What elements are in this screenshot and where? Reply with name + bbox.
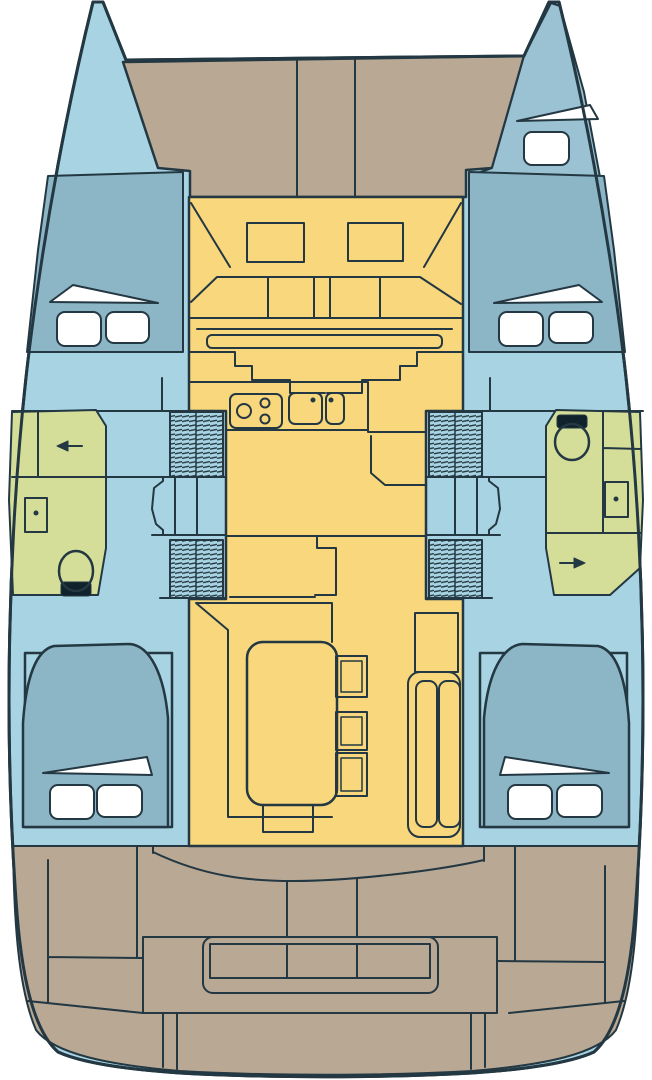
catamaran-floor-plan — [0, 0, 652, 1080]
starboard-aft-pillow-2 — [557, 785, 602, 817]
starboard-sink-faucet-dot — [614, 497, 618, 501]
port-forward-pillow-2 — [106, 312, 149, 343]
starboard-toilet-seat — [557, 415, 587, 428]
floor-plan-canvas — [0, 0, 652, 1080]
galley-faucet-dot — [311, 398, 315, 402]
starboard-aft-pillow-1 — [508, 785, 552, 819]
port-forward-pillow-1 — [57, 312, 101, 346]
salon-floor — [189, 197, 463, 846]
starboard-forward-pillow-2 — [549, 312, 593, 343]
plan-artwork — [9, 2, 643, 1077]
port-head — [9, 410, 106, 595]
port-toilet-seat — [61, 582, 91, 596]
port-aft-pillow-2 — [97, 785, 142, 817]
starboard-forward-pillow-1 — [499, 312, 543, 346]
port-sink-faucet-dot — [34, 511, 38, 515]
port-aft-cabin-bed — [23, 644, 168, 827]
skipper-pillow — [524, 132, 569, 165]
galley-faucet-dot-2 — [329, 398, 333, 402]
port-aft-pillow-1 — [50, 785, 94, 819]
